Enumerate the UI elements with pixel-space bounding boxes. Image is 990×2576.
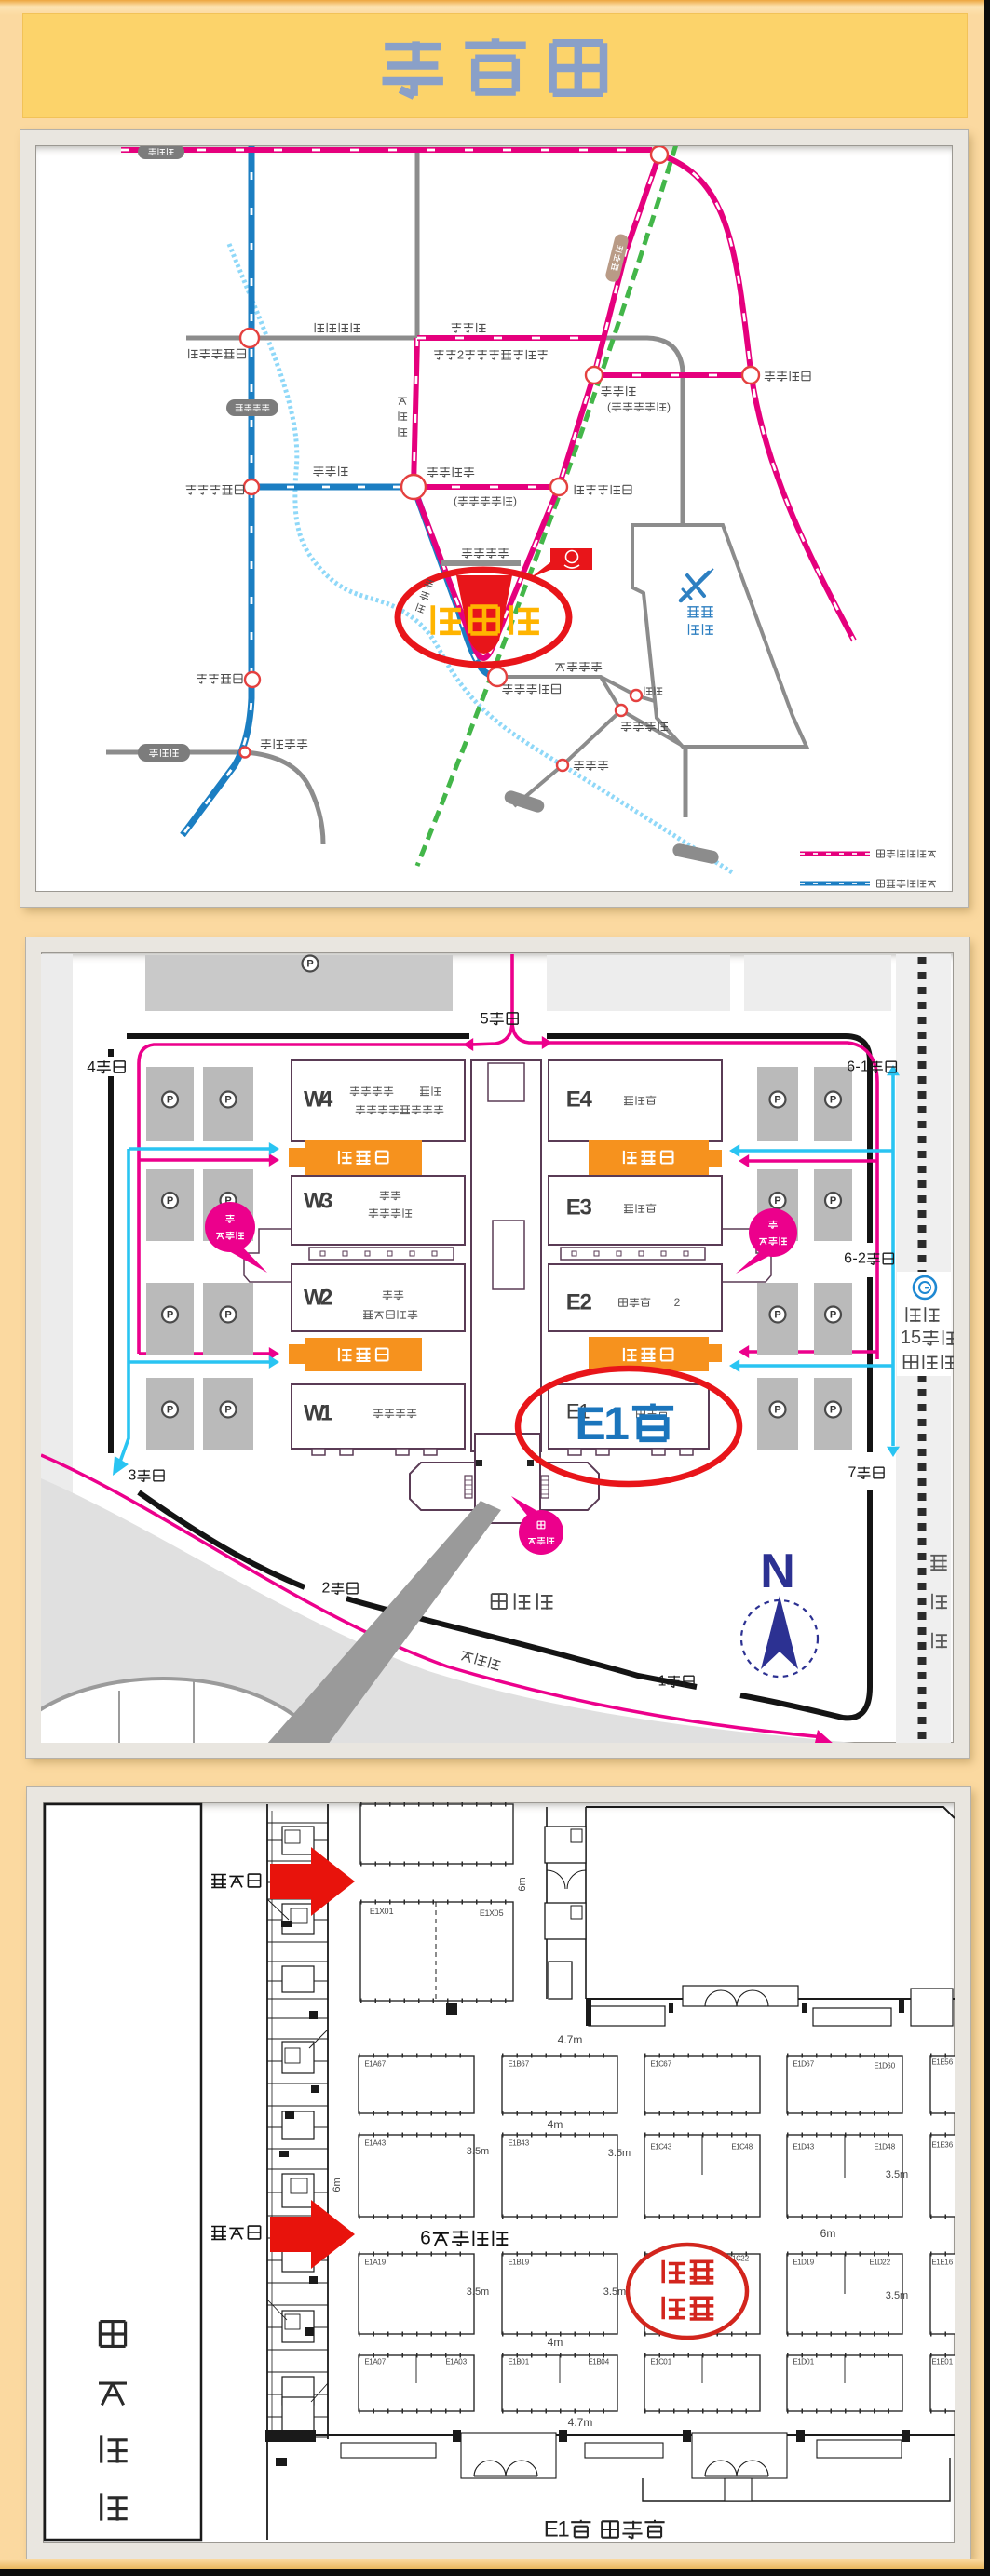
svg-text:P: P (167, 1405, 173, 1416)
svg-text:9: 9 (810, 2259, 815, 2267)
svg-text:1: 1 (810, 2358, 815, 2367)
svg-text:4: 4 (580, 1087, 593, 1113)
svg-text:4.7m: 4.7m (568, 2416, 593, 2429)
svg-text:6m: 6m (517, 1877, 528, 1891)
svg-text:P: P (830, 1095, 836, 1106)
svg-text:E: E (566, 1195, 581, 1221)
svg-text:1: 1 (603, 1397, 630, 1450)
svg-text:1: 1 (668, 2358, 672, 2367)
svg-text:5: 5 (911, 1328, 921, 1348)
svg-text:E: E (566, 1290, 581, 1315)
svg-text:(: ( (454, 494, 457, 507)
svg-text:P: P (224, 1405, 231, 1416)
svg-text:(: ( (607, 400, 611, 413)
svg-text:6m: 6m (332, 2178, 343, 2192)
svg-text:P: P (774, 1405, 780, 1416)
svg-text:P: P (774, 1095, 780, 1106)
svg-text:P: P (167, 1195, 173, 1207)
svg-text:3.5m: 3.5m (608, 2148, 631, 2159)
svg-text:6: 6 (949, 2141, 954, 2150)
svg-text:P: P (830, 1195, 836, 1207)
svg-text:2: 2 (674, 1296, 681, 1309)
svg-text:6: 6 (949, 2259, 954, 2267)
svg-text:2: 2 (580, 1290, 592, 1315)
svg-text:7: 7 (810, 2060, 815, 2069)
svg-text:3: 3 (810, 2143, 815, 2151)
svg-text:2: 2 (745, 2255, 750, 2263)
svg-text:1: 1 (525, 2358, 530, 2367)
svg-text:7: 7 (382, 2358, 387, 2367)
svg-text:3.5m: 3.5m (603, 2286, 626, 2298)
svg-text:3: 3 (525, 2139, 530, 2148)
svg-text:-: - (855, 1059, 860, 1075)
svg-text:E: E (544, 2517, 559, 2542)
svg-text:1: 1 (949, 2358, 954, 2367)
svg-text:1: 1 (658, 1674, 667, 1690)
svg-text:1: 1 (320, 1401, 332, 1426)
svg-text:9: 9 (525, 2259, 530, 2267)
svg-text:6: 6 (420, 2228, 431, 2249)
svg-text:P: P (167, 1310, 173, 1321)
svg-text:4: 4 (605, 2358, 610, 2367)
svg-text:P: P (306, 959, 313, 970)
svg-text:4m: 4m (548, 2336, 563, 2349)
svg-text:2: 2 (887, 2259, 891, 2267)
svg-text:P: P (167, 1095, 173, 1106)
svg-text:1: 1 (901, 1328, 911, 1348)
svg-text:1: 1 (557, 2517, 569, 2542)
svg-text:6: 6 (847, 1059, 855, 1075)
svg-text:7: 7 (848, 1465, 857, 1481)
svg-text:9: 9 (382, 2259, 387, 2267)
svg-text:4: 4 (87, 1059, 95, 1076)
svg-text:3.5m: 3.5m (886, 2290, 908, 2301)
svg-text:6: 6 (844, 1251, 852, 1267)
svg-text:3: 3 (463, 2358, 468, 2367)
svg-text:P: P (224, 1310, 231, 1321)
svg-text:P: P (830, 1310, 836, 1321)
svg-text:): ) (667, 400, 671, 413)
svg-text:3.5m: 3.5m (467, 2286, 489, 2298)
svg-text:1: 1 (861, 1059, 869, 1075)
svg-text:4m: 4m (548, 2118, 563, 2131)
svg-text:4: 4 (320, 1087, 333, 1113)
svg-text:6m: 6m (820, 2227, 836, 2240)
svg-text:P: P (774, 1310, 780, 1321)
svg-text:5: 5 (480, 1010, 488, 1028)
svg-text:3: 3 (320, 1189, 332, 1214)
svg-text:2: 2 (320, 1286, 332, 1311)
svg-text:1: 1 (389, 1907, 394, 1916)
svg-text:P: P (224, 1095, 231, 1106)
svg-text:6: 6 (949, 2058, 954, 2067)
svg-text:3: 3 (580, 1195, 592, 1221)
svg-text:E: E (575, 1397, 605, 1450)
svg-text:2: 2 (858, 1251, 866, 1267)
svg-text:3.5m: 3.5m (886, 2169, 908, 2180)
svg-text:5: 5 (499, 1908, 504, 1918)
svg-text:8: 8 (891, 2143, 896, 2151)
svg-text:7: 7 (525, 2060, 530, 2069)
svg-text:-: - (852, 1251, 857, 1267)
svg-text:4.7m: 4.7m (558, 2033, 583, 2046)
svg-text:): ) (513, 494, 517, 507)
svg-text:3.5m: 3.5m (467, 2146, 489, 2157)
svg-text:2: 2 (457, 348, 464, 362)
svg-text:7: 7 (382, 2060, 387, 2069)
svg-text:P: P (830, 1405, 836, 1416)
svg-text:8: 8 (749, 2143, 753, 2151)
svg-text:N: N (760, 1544, 795, 1598)
svg-text:E: E (566, 1087, 581, 1113)
svg-text:2: 2 (322, 1581, 331, 1597)
svg-text:3: 3 (129, 1468, 137, 1484)
svg-text:3: 3 (668, 2143, 672, 2151)
svg-text:7: 7 (668, 2060, 672, 2069)
svg-text:0: 0 (891, 2062, 896, 2070)
svg-text:3: 3 (382, 2139, 387, 2148)
svg-text:P: P (774, 1195, 780, 1207)
